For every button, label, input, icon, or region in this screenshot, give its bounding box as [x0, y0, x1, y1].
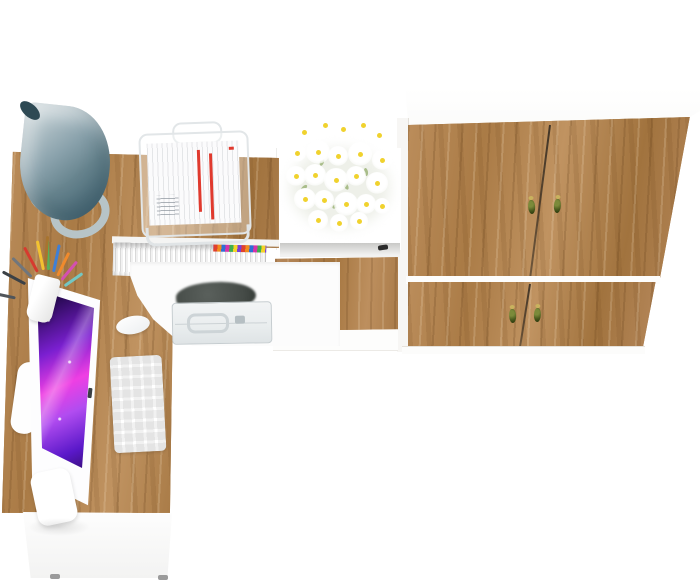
wardrobe-top-panel	[396, 0, 700, 126]
basket-papers	[147, 140, 242, 225]
briefcase-handle	[187, 313, 229, 334]
wardrobe-handle	[527, 196, 535, 214]
paper-text-block	[156, 195, 179, 216]
handle-body	[528, 200, 536, 214]
cup-body	[25, 274, 61, 325]
briefcase	[172, 301, 273, 345]
wardrobe	[390, 0, 700, 360]
scene	[0, 0, 700, 582]
pedestal-foot	[158, 575, 168, 580]
basket-stand	[146, 224, 251, 247]
paper-red-mark	[229, 147, 234, 150]
keyboard	[110, 355, 167, 454]
handle-body	[509, 309, 517, 323]
wardrobe-handle	[534, 304, 542, 322]
basket-frame	[138, 130, 252, 238]
paper-red-stripe	[197, 150, 202, 212]
monitor-shadow	[28, 518, 90, 536]
desk-lamp	[0, 96, 130, 246]
handle-body	[553, 199, 561, 213]
wardrobe-handle	[553, 195, 561, 213]
wardrobe-base-strip	[402, 346, 645, 354]
pedestal-foot	[50, 574, 60, 579]
paper-basket	[134, 116, 258, 250]
flower-bouquet	[280, 110, 404, 238]
handle-body	[534, 308, 542, 322]
paper-red-stripe	[209, 153, 214, 219]
wardrobe-handle	[509, 305, 517, 323]
briefcase-latch	[235, 316, 245, 324]
